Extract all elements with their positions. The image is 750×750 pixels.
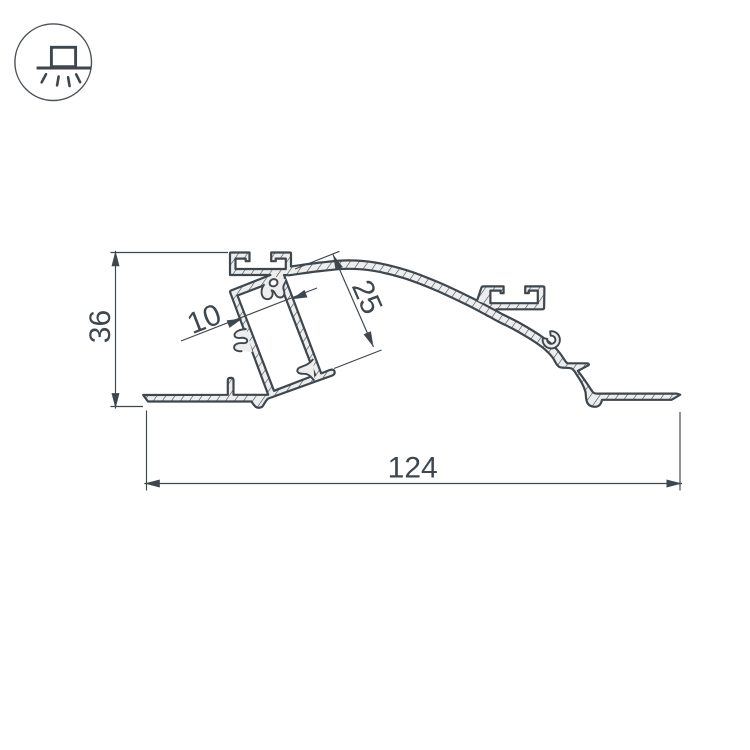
svg-text:10: 10 xyxy=(183,298,226,341)
svg-text:36: 36 xyxy=(84,310,117,343)
svg-text:25: 25 xyxy=(345,275,389,319)
svg-text:124: 124 xyxy=(388,452,438,485)
